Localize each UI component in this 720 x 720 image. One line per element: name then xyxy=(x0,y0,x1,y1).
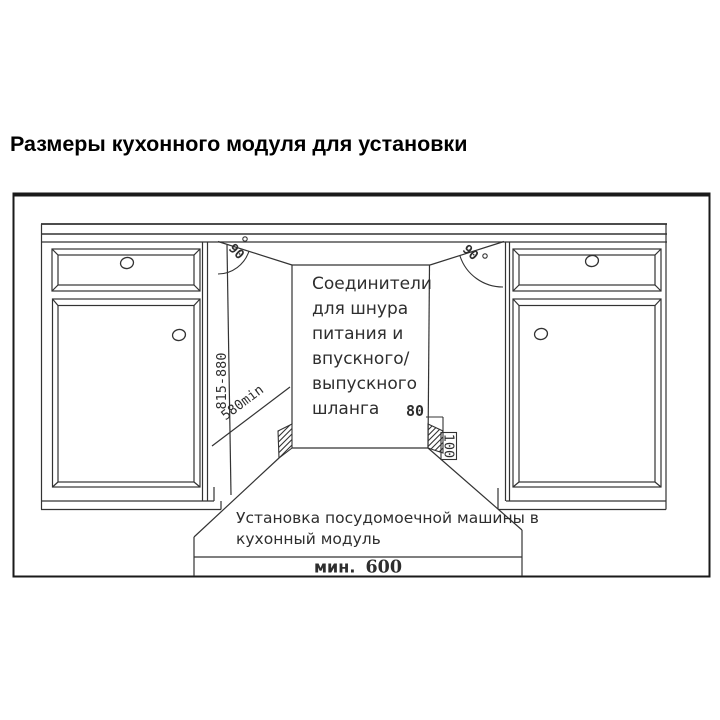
left-cabinet xyxy=(42,224,208,510)
block-height-dim: 100 xyxy=(441,434,457,458)
left-cabinet-door xyxy=(53,299,201,487)
door-knob-right xyxy=(533,327,548,340)
right-cabinet-door xyxy=(513,299,661,487)
door-knob-left xyxy=(171,328,186,341)
drawer-knob-left xyxy=(119,256,134,269)
plinth xyxy=(41,487,666,510)
niche-height-dim: 815-880 xyxy=(214,353,230,410)
connector-note-line: впускного/ xyxy=(312,349,410,369)
connector-note-line: шланга xyxy=(312,399,379,419)
countertop xyxy=(41,224,667,242)
degree-symbol-left xyxy=(243,237,247,241)
right-cabinet xyxy=(506,224,667,510)
min-width-label: мин. xyxy=(314,558,355,577)
min-width-value: 600 xyxy=(365,558,402,578)
connector-note-line: Соединители xyxy=(312,274,432,294)
install-note: Установка посудомоечной машины в кухонны… xyxy=(236,509,539,548)
hatch-block-left xyxy=(278,424,292,458)
right-cabinet-drawer xyxy=(513,249,661,291)
manual-page: Размеры кухонного модуля для установки xyxy=(0,0,720,720)
block-width-dim: 80 xyxy=(406,402,424,420)
connector-note-line: для шнура xyxy=(312,299,408,319)
installation-diagram: 80 100 815-880 580min 90 90 Соединители … xyxy=(0,0,720,720)
drawer-knob-right xyxy=(584,254,599,267)
install-note-line: Установка посудомоечной машины в xyxy=(236,509,539,527)
spacer-blocks xyxy=(278,424,443,458)
angle-right-label: 90 xyxy=(459,242,481,264)
connector-note-line: выпускного xyxy=(312,374,417,394)
connector-note: Соединители для шнура питания и впускног… xyxy=(312,274,432,419)
left-cabinet-drawer xyxy=(52,249,200,291)
connector-note-line: питания и xyxy=(312,324,403,344)
angle-arc-right xyxy=(460,256,503,287)
degree-symbol-right xyxy=(483,254,487,258)
install-note-line: кухонный модуль xyxy=(236,530,381,548)
svg-text:мин. 600: мин. 600 xyxy=(314,558,402,578)
